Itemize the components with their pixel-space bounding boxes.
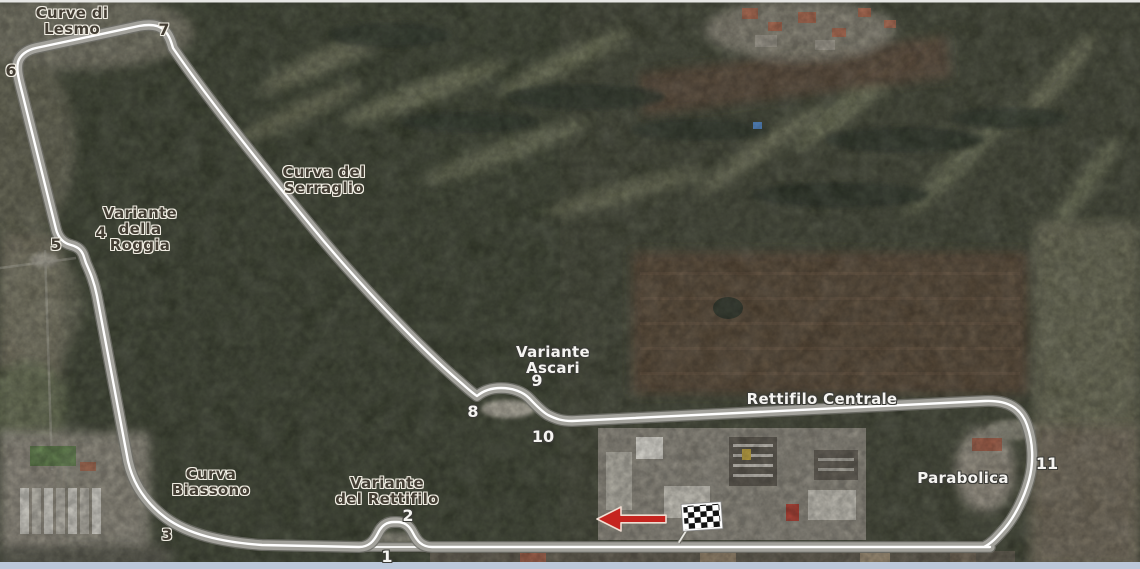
label-variante-della-roggia: Variante della Roggia xyxy=(103,205,177,253)
bottom-border xyxy=(0,562,1140,569)
top-border xyxy=(0,0,1140,3)
turn-number-4: 4 xyxy=(95,225,106,241)
label-curve-di-lesmo: Curve di Lesmo xyxy=(36,5,109,37)
turn-number-9: 9 xyxy=(531,373,542,389)
turn-number-11: 11 xyxy=(1036,456,1058,472)
label-parabolica: Parabolica xyxy=(917,470,1009,486)
circuit-map: Curve di Lesmo Variante della Roggia Cur… xyxy=(0,0,1140,569)
label-curva-del-serraglio: Curva del Serraglio xyxy=(283,164,366,196)
turn-number-7: 7 xyxy=(158,22,169,38)
turn-number-2: 2 xyxy=(402,508,413,524)
turn-number-1: 1 xyxy=(381,549,392,565)
turn-number-5: 5 xyxy=(50,237,61,253)
label-variante-del-rettifilo: Variante del Rettifilo xyxy=(335,475,439,507)
label-curva-biassono: Curva Biassono xyxy=(172,466,250,498)
label-rettifilo-centrale: Rettifilo Centrale xyxy=(747,391,898,407)
turn-number-8: 8 xyxy=(467,404,478,420)
turn-number-6: 6 xyxy=(5,63,16,79)
label-variante-ascari: Variante Ascari xyxy=(516,344,590,376)
turn-number-10: 10 xyxy=(532,429,554,445)
turn-number-3: 3 xyxy=(161,527,172,543)
